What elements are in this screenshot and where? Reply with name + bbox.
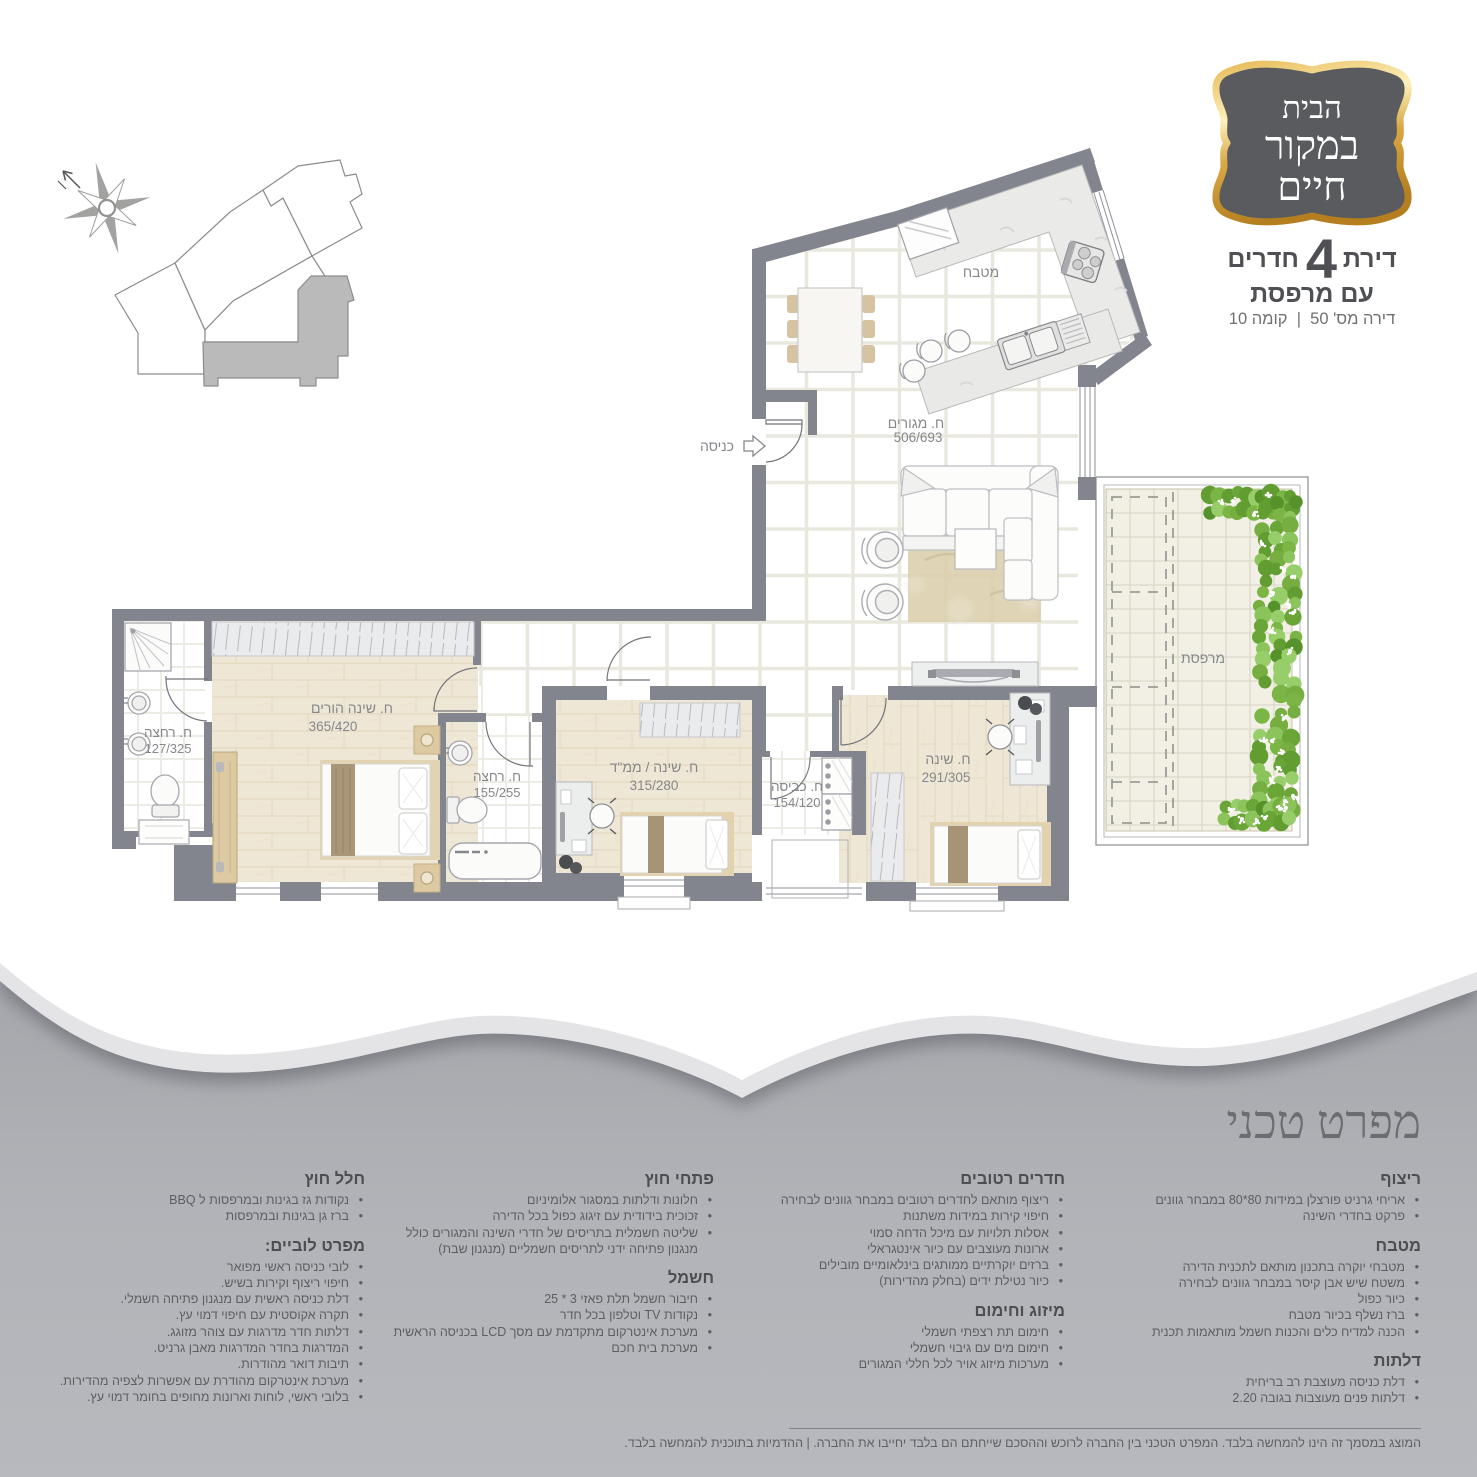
svg-text:ח. רחצה: ח. רחצה [144, 725, 192, 740]
svg-text:מרפסת: מרפסת [1181, 650, 1225, 666]
svg-text:הבית: הבית [1282, 90, 1342, 125]
svg-text:מטבח: מטבח [963, 264, 999, 280]
svg-text:365/420: 365/420 [309, 719, 358, 734]
svg-text:127/325: 127/325 [145, 741, 192, 756]
svg-text:291/305: 291/305 [922, 770, 971, 785]
svg-text:155/255: 155/255 [474, 785, 521, 800]
svg-text:ח. כביסה: ח. כביסה [771, 779, 823, 794]
svg-text:154/120: 154/120 [774, 795, 821, 810]
svg-text:506/693: 506/693 [894, 430, 943, 445]
svg-text:כניסה: כניסה [700, 438, 734, 454]
svg-text:315/280: 315/280 [630, 778, 679, 793]
svg-text:ח. שינה הורים: ח. שינה הורים [311, 700, 393, 716]
svg-text:ח. שינה: ח. שינה [925, 751, 970, 767]
svg-text:חיים: חיים [1277, 164, 1347, 209]
svg-text:במקור: במקור [1265, 123, 1359, 168]
svg-text:ח. רחצה: ח. רחצה [473, 769, 521, 784]
svg-text:ח. שינה / ממ"ד: ח. שינה / ממ"ד [610, 759, 699, 775]
svg-text:ח. מגורים: ח. מגורים [888, 415, 945, 431]
